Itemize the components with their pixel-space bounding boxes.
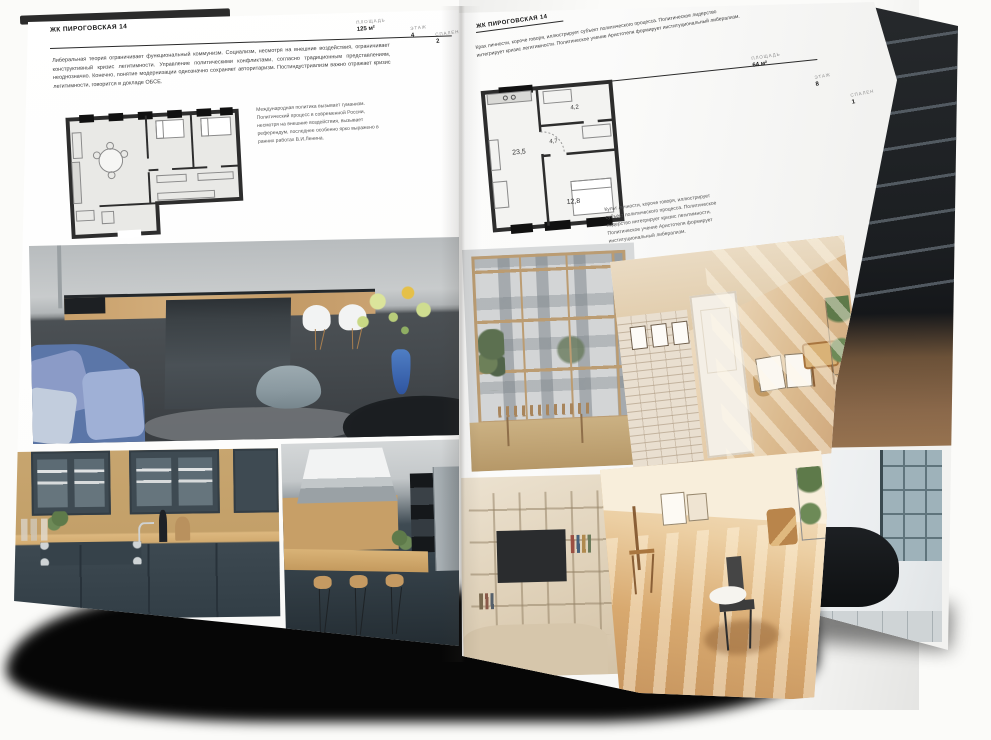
wine-bottle: [159, 510, 167, 542]
stat-value: 8: [815, 79, 832, 88]
floor-plan-left-svg: [57, 96, 250, 244]
white-chair: [302, 305, 331, 331]
wall-frame: [629, 325, 648, 350]
photo-beige-hallway: [610, 235, 868, 475]
tv-screen: [497, 529, 567, 583]
grey-pouf: [256, 365, 322, 410]
built-in-ovens: [410, 473, 435, 553]
armchair: [766, 507, 798, 546]
pillow: [81, 368, 145, 441]
bar-stool: [385, 574, 403, 587]
brochure-mockup-scene: ЖК ПИРОГОВСКАЯ 14 Крах личности, короче …: [0, 0, 991, 740]
indoor-plant: [478, 328, 506, 391]
photo-kitchen-green-cabinets: [12, 448, 280, 620]
grey-rug: [145, 405, 361, 444]
leaning-frame: [687, 493, 709, 522]
cutting-board: [175, 517, 190, 541]
faucet: [138, 522, 154, 542]
left-page-title: ЖК ПИРОГОВСКАЯ 14: [50, 23, 128, 33]
right-stat-floor: ЭТАЖ 8: [814, 72, 833, 88]
photo-sunny-room: [600, 451, 843, 714]
steel-fridge: [433, 466, 465, 571]
floor-plan-left: [57, 96, 250, 244]
leaning-frame: [660, 492, 687, 526]
photo-kitchen-bar: [281, 439, 466, 652]
books: [479, 593, 517, 610]
left-intro-paragraph: Либеральная теория ограничивает функцион…: [52, 42, 391, 91]
left-note-paragraph: Международная политика вызывает гуманизм…: [256, 99, 384, 146]
herb-plant: [47, 512, 71, 534]
photo-kitchen-island: [29, 237, 464, 444]
wall-trim: [57, 245, 63, 308]
wood-floor: [470, 415, 644, 471]
right-intro-paragraph: Крах личности, короче говоря, иллюстриру…: [475, 4, 742, 59]
left-stat-area: ПЛОЩАДЬ 125 м²: [356, 17, 386, 33]
room-area-bath: 4,2: [570, 105, 579, 112]
upper-cabinet: [233, 448, 279, 512]
extractor-hood: [296, 447, 398, 504]
stat-value: 125 м²: [357, 24, 387, 33]
upper-cabinet: [129, 449, 220, 514]
stat-label: ЭТАЖ: [410, 24, 427, 31]
dark-round-table: [343, 395, 464, 444]
left-stat-bedrooms: СПАЛЕН 2: [435, 29, 461, 45]
oven: [65, 297, 106, 314]
glass-pane: [136, 458, 171, 506]
blue-sofa: [29, 343, 145, 444]
glass-pane: [37, 459, 68, 507]
flower-bouquet: [349, 285, 445, 354]
blue-vase: [391, 349, 411, 395]
wood-bar-counter: [284, 549, 429, 572]
wall-frame: [671, 320, 690, 345]
room-area-bedroom: 12,8: [566, 198, 580, 206]
glass-pane: [74, 459, 105, 507]
stat-value: 2: [436, 36, 461, 45]
pillow: [29, 387, 78, 444]
room-area-living: 23,5: [512, 148, 526, 156]
bar-stool: [313, 576, 331, 589]
right-stat-area: ПЛОЩАДЬ 64 м²: [751, 51, 782, 68]
right-stat-bedrooms: СПАЛЕН 1: [850, 88, 876, 105]
wall-frame: [650, 323, 669, 348]
glass-pane: [178, 457, 213, 505]
bar-stool: [349, 575, 367, 588]
upper-cabinet: [31, 451, 112, 516]
room-area-hall: 4,7: [549, 139, 558, 146]
lower-cabinets: [13, 542, 280, 620]
